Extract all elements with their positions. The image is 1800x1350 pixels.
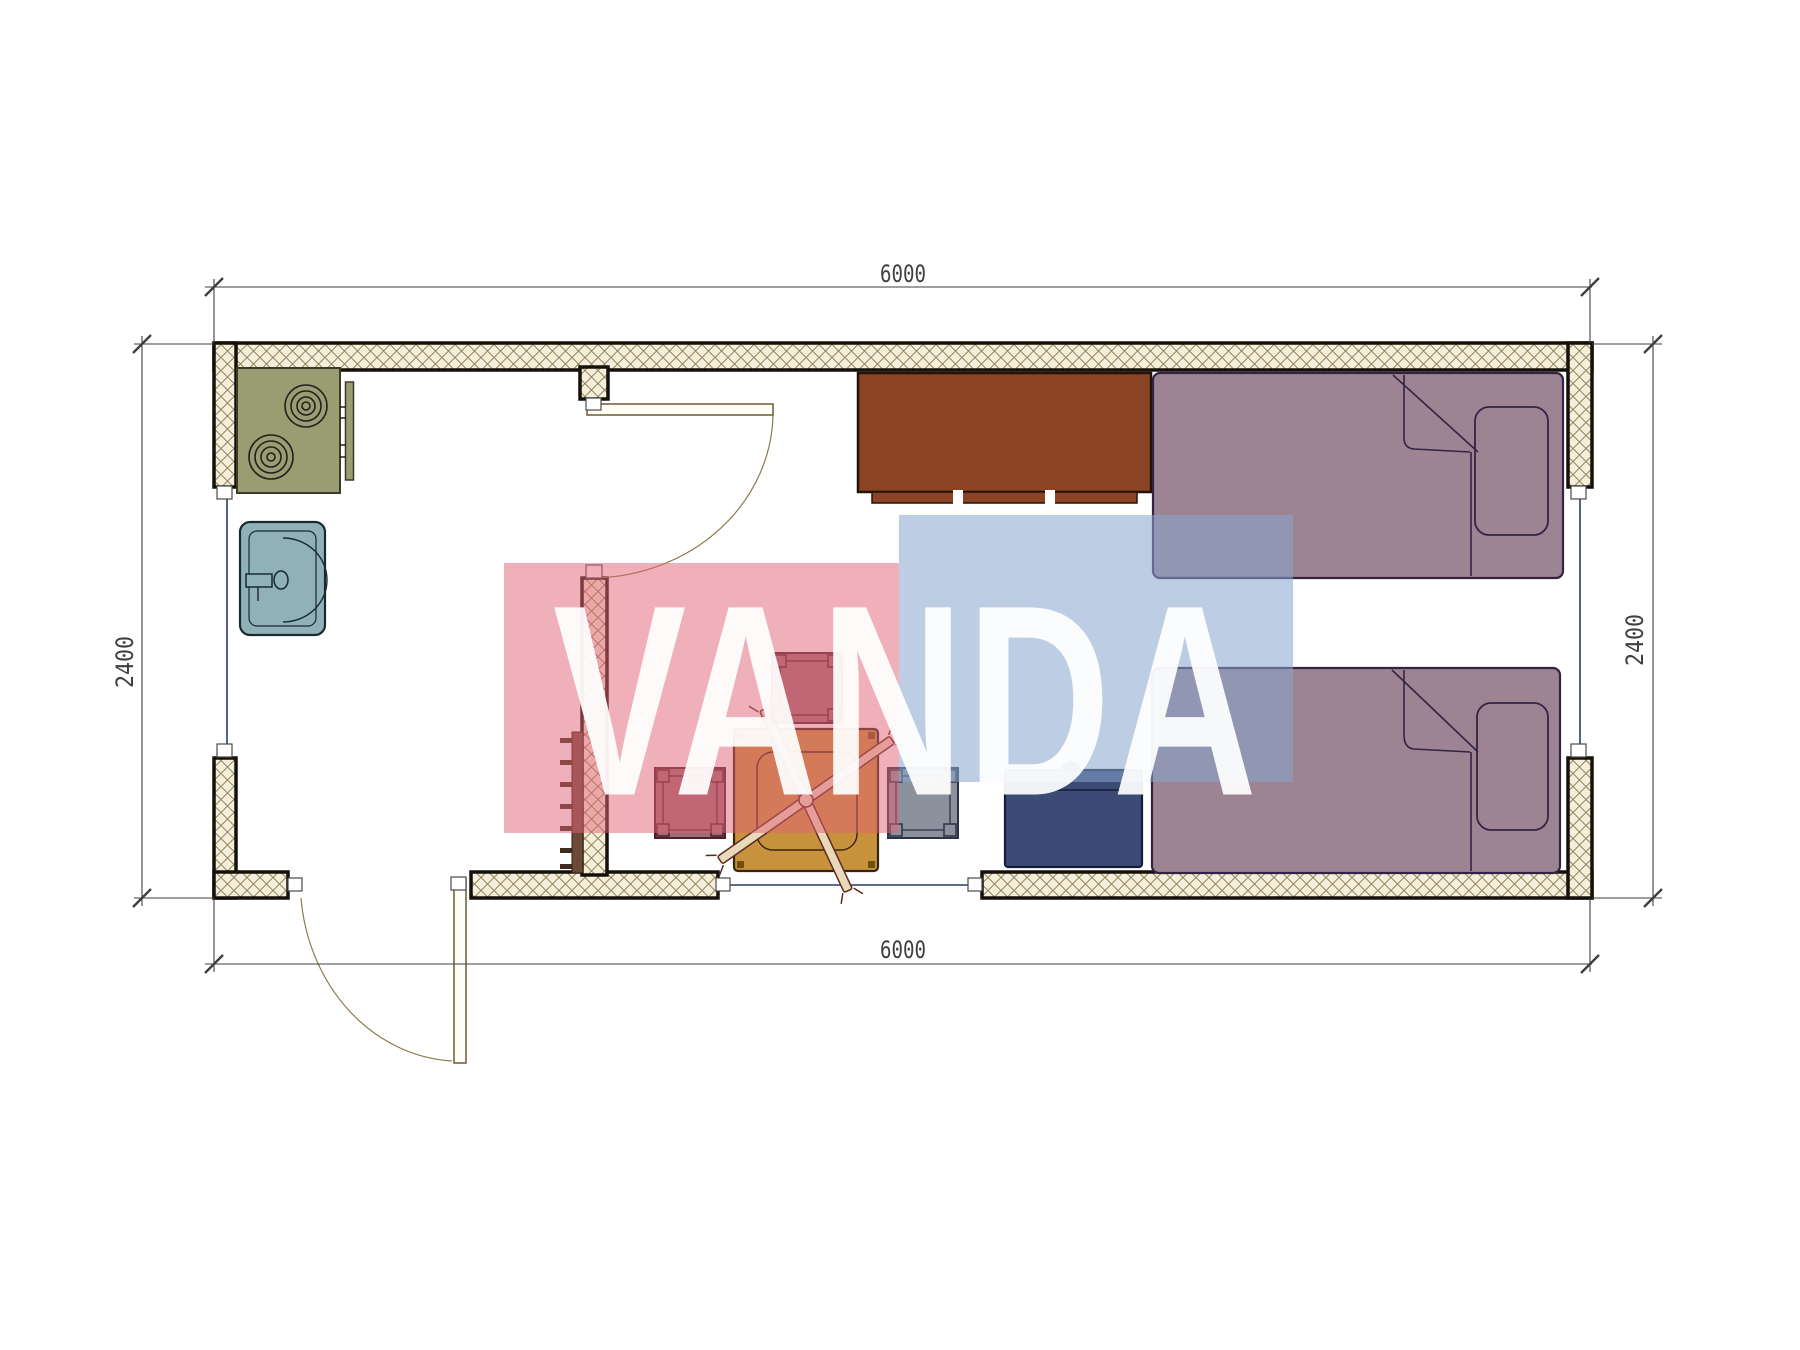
dim-bottom: 6000 [880, 936, 926, 964]
table [706, 696, 907, 904]
door-leaf [587, 404, 773, 415]
floor-plan-drawing: 6000 6000 2400 2400 [0, 0, 1800, 1350]
wall-bottom-right [982, 872, 1592, 898]
stove-side-panel [346, 382, 354, 480]
door-swing-arc [593, 413, 773, 578]
wall-bottom-left-leg [214, 872, 288, 898]
wall-right-lower [1568, 758, 1592, 898]
wall-door-stub [580, 367, 608, 399]
wall-partition [582, 578, 607, 875]
stool-right [888, 768, 958, 838]
wall-ladder [560, 732, 583, 873]
pillow [1475, 407, 1548, 535]
stool-top [772, 653, 842, 723]
wall-right-upper [1568, 343, 1592, 487]
door-leaf [454, 879, 466, 1063]
cabinet-base-notch [953, 490, 963, 505]
entry-door [301, 879, 466, 1063]
storage-chest [1005, 762, 1142, 867]
stool-left [655, 768, 725, 838]
chest-knob [1062, 762, 1080, 770]
interior-door [587, 404, 773, 578]
pillow [1477, 703, 1548, 830]
stove [237, 368, 354, 493]
wall-left-upper [214, 343, 236, 487]
dim-top: 6000 [880, 260, 926, 288]
bed-top [1153, 373, 1563, 578]
cabinet-base [872, 492, 1137, 503]
dim-left: 2400 [111, 636, 139, 688]
bed-bottom [1152, 668, 1560, 873]
ladder-rungs [560, 738, 572, 869]
dim-right: 2400 [1621, 614, 1649, 666]
cabinet-base-notch [1045, 490, 1055, 505]
cabinet [858, 373, 1151, 505]
wall-top [214, 343, 1592, 370]
door-swing-arc [301, 898, 452, 1061]
faucet-icon [246, 574, 272, 587]
floor-plan-page: 6000 6000 2400 2400 VANDA [0, 0, 1800, 1350]
sink [240, 522, 327, 635]
